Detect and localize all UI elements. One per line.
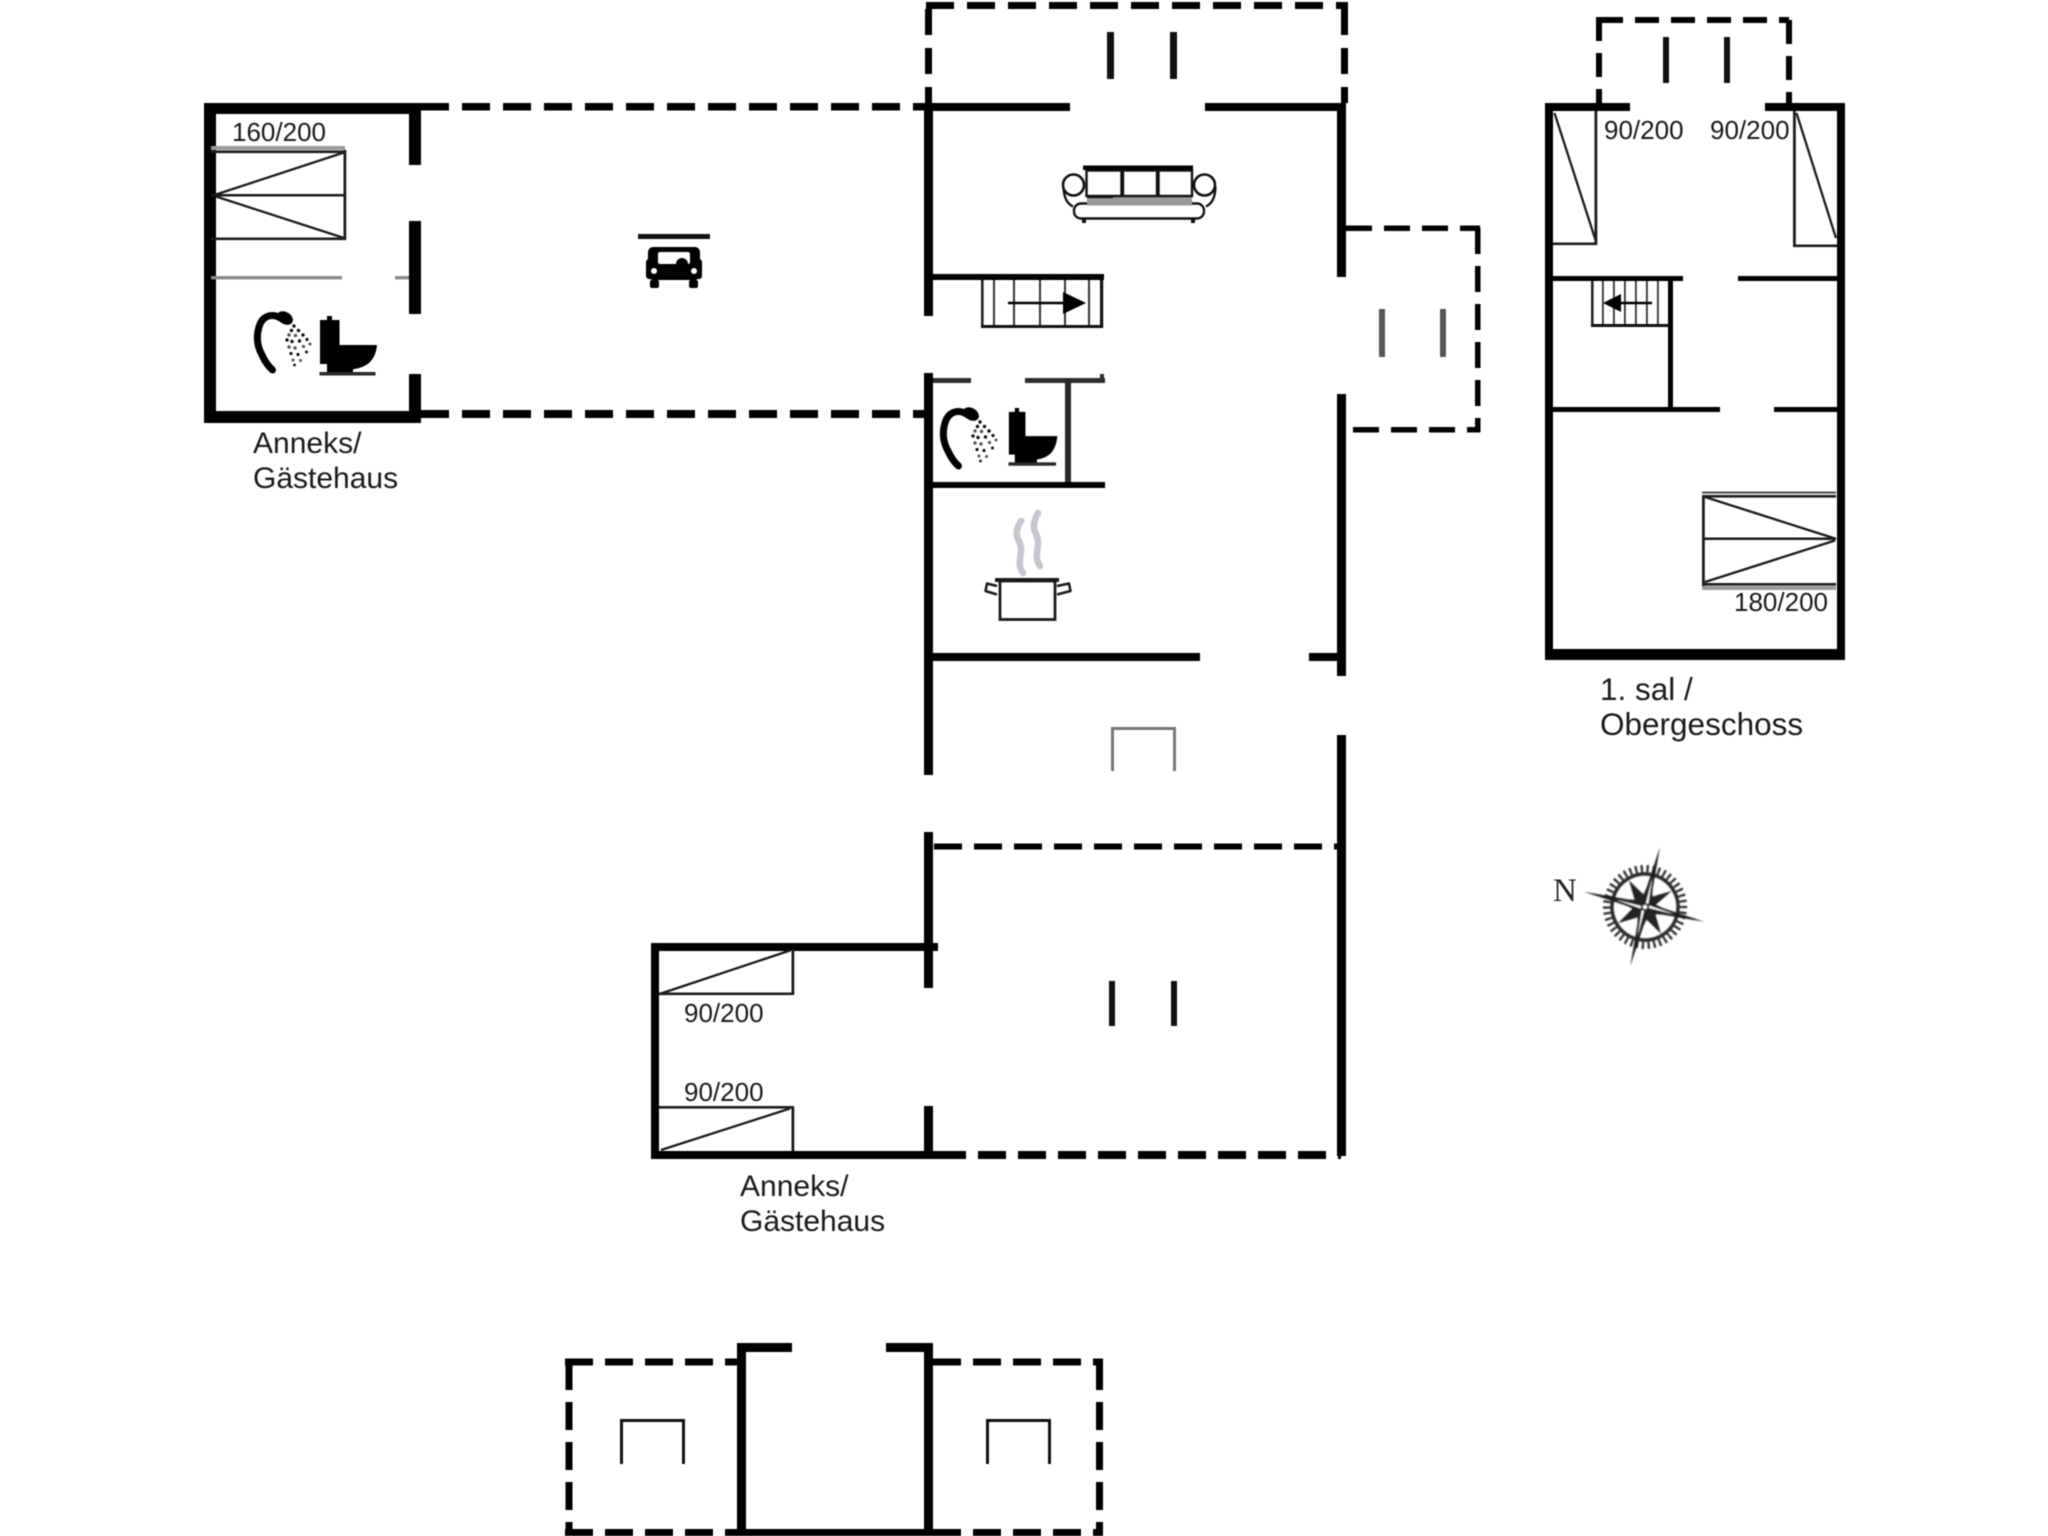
svg-text:Anneks/: Anneks/ bbox=[253, 427, 362, 460]
svg-text:90/200: 90/200 bbox=[684, 1077, 764, 1107]
svg-text:160/200: 160/200 bbox=[232, 117, 326, 147]
svg-text:Anneks/: Anneks/ bbox=[740, 1170, 849, 1203]
svg-text:1. sal /: 1. sal / bbox=[1600, 671, 1693, 707]
svg-text:Obergeschoss: Obergeschoss bbox=[1600, 706, 1803, 742]
svg-text:180/200: 180/200 bbox=[1734, 587, 1828, 617]
svg-text:90/200: 90/200 bbox=[1710, 115, 1790, 145]
svg-text:90/200: 90/200 bbox=[1604, 115, 1684, 145]
svg-text:90/200: 90/200 bbox=[684, 998, 764, 1028]
svg-text:Gästehaus: Gästehaus bbox=[253, 462, 398, 495]
svg-text:N: N bbox=[1553, 873, 1577, 909]
svg-text:Gästehaus: Gästehaus bbox=[740, 1205, 885, 1238]
